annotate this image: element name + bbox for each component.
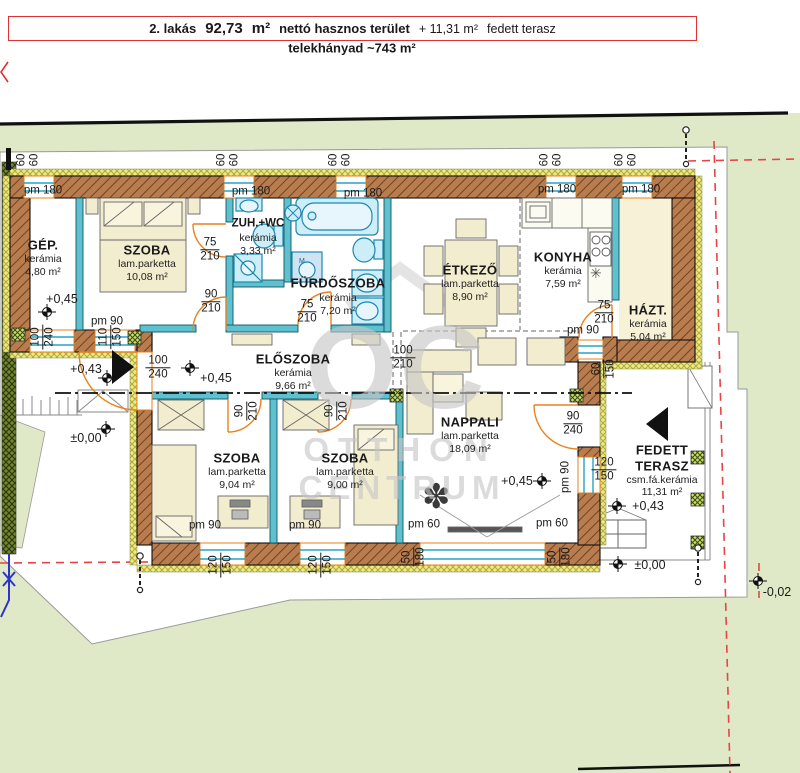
room-finish: kerámia <box>24 254 61 265</box>
opening-width: 100 <box>390 344 415 358</box>
opening-height: 210 <box>201 303 220 316</box>
opening-height: 180 <box>561 547 574 566</box>
opening-height: 210 <box>297 313 316 326</box>
opening-height: 210 <box>200 251 219 264</box>
opening-width: 60 <box>590 360 604 379</box>
room-area: 11,31 m² <box>642 487 683 498</box>
room-finish: kerámia <box>544 266 581 277</box>
opening-width: 110 <box>97 325 111 349</box>
hall-cabinet-icon <box>232 334 272 345</box>
parapet-label: pm 180 <box>232 186 270 198</box>
parapet-label: pm 90 <box>560 461 572 493</box>
room-area: 9,04 m² <box>219 480 255 491</box>
fridge-icon: ✳ <box>590 265 602 281</box>
edge-tick <box>6 148 11 170</box>
opening-height: 240 <box>563 425 582 438</box>
opening-width: 90 <box>323 402 337 421</box>
opening-size-label: 120 150 <box>307 552 334 577</box>
level-label: +0,45 <box>46 293 78 306</box>
dim-60: 60 <box>539 154 551 167</box>
room-area: 4,80 m² <box>25 267 61 278</box>
opening-size-label: 90 240 <box>563 410 582 437</box>
opening-width: 100 <box>29 324 43 349</box>
room-area: 3,33 m² <box>240 246 276 257</box>
dim-60: 60 <box>341 154 353 167</box>
room-name-eloszoba: ELŐSZOBA <box>256 353 331 366</box>
room-name-hazt: HÁZT. <box>629 304 667 317</box>
opening-width: 90 <box>564 410 583 424</box>
opening-height: 240 <box>44 327 57 346</box>
floor-plan-page: M ✳ ✽ <box>0 0 800 773</box>
opening-size-label: 110 150 <box>97 325 124 349</box>
opening-size-label: 90 210 <box>323 401 350 420</box>
level-label: ±0,00 <box>70 432 101 445</box>
stove-icon <box>590 232 611 266</box>
level-label: +0,43 <box>70 363 102 376</box>
level-label: +0,43 <box>632 500 664 513</box>
room-area: 9,66 m² <box>275 381 311 392</box>
opening-width: 90 <box>202 288 221 302</box>
room-finish: lam.parketta <box>208 467 266 478</box>
room-finish: kerámia <box>239 233 276 244</box>
room-area: 10,08 m² <box>126 272 167 283</box>
opening-height: 210 <box>594 314 613 327</box>
opening-width: 120 <box>207 552 221 577</box>
room-name-fedett: FEDETT <box>636 444 688 457</box>
room-name-szoba2: SZOBA <box>214 452 261 465</box>
opening-size-label: 75 210 <box>594 299 613 326</box>
opening-size-label: 75 210 <box>297 298 316 325</box>
shower-head-icon <box>285 205 301 221</box>
room-finish: kerámia <box>319 293 356 304</box>
level-label: ±0,00 <box>634 559 665 572</box>
room-area: 9,00 m² <box>327 480 363 491</box>
sink-icon <box>236 198 262 212</box>
dim-60: 60 <box>29 154 41 167</box>
room-finish: csm.fá.kerámia <box>626 475 697 486</box>
parapet-label: pm 180 <box>24 185 62 197</box>
opening-size-label: 60 150 <box>590 359 617 378</box>
room-finish: lam.parketta <box>441 431 499 442</box>
opening-width: 50 <box>546 548 560 567</box>
svg-text:M: M <box>299 258 305 265</box>
plot-share-label: telekhányad ~743 m² <box>288 41 416 56</box>
opening-size-label: 50 180 <box>400 547 427 566</box>
opening-width: 120 <box>591 456 616 470</box>
parapet-label: pm 180 <box>538 184 576 196</box>
opening-width: 75 <box>298 298 317 312</box>
parapet-label: pm 90 <box>567 325 599 337</box>
dim-60: 60 <box>627 154 639 167</box>
dim-60: 60 <box>552 154 564 167</box>
opening-width: 50 <box>400 548 414 567</box>
opening-size-label: 50 180 <box>546 547 573 566</box>
room-name-nappali: NAPPALI <box>441 416 499 429</box>
opening-height: 210 <box>338 401 351 420</box>
dim-60: 60 <box>216 154 228 167</box>
opening-size-label: 90 210 <box>201 288 220 315</box>
opening-width: 90 <box>233 402 247 421</box>
opening-height: 150 <box>594 471 613 484</box>
level-label: +0,45 <box>200 372 232 385</box>
title-banner: 2. lakás 92,73 m² nettó hasznos terület … <box>8 16 697 41</box>
terrace-area-label: fedett terasz <box>487 22 556 36</box>
opening-width: 120 <box>307 552 321 577</box>
room-area: 8,90 m² <box>452 292 488 303</box>
room-area: 7,20 m² <box>320 306 356 317</box>
parapet-label: pm 180 <box>344 188 382 200</box>
terrace-area-value: + 11,31 m² <box>419 22 478 36</box>
net-area-unit: m² <box>252 20 270 37</box>
room-finish: lam.parketta <box>118 259 176 270</box>
room-area: 18,09 m² <box>449 444 490 455</box>
room-name-zuhwc: ZUH.+WC <box>232 218 285 230</box>
opening-size-label: 90 210 <box>233 401 260 420</box>
net-area-label: nettó hasznos terület <box>279 21 410 36</box>
opening-height: 240 <box>148 369 167 382</box>
dim-60: 60 <box>614 154 626 167</box>
opening-width: 75 <box>595 299 614 313</box>
room-name-etkezo: ÉTKEZŐ <box>443 264 498 277</box>
opening-width: 75 <box>201 236 220 250</box>
opening-size-label: 120 150 <box>591 456 616 483</box>
room-area: 7,59 m² <box>545 279 581 290</box>
wardrobe-icon <box>158 400 204 430</box>
room-finish: kerámia <box>274 368 311 379</box>
tv-icon <box>448 527 522 532</box>
level-label: +0,45 <box>501 475 533 488</box>
opening-size-label: 75 210 <box>200 236 219 263</box>
bathtub-icon <box>296 198 378 235</box>
room-finish: lam.parketta <box>316 467 374 478</box>
opening-height: 150 <box>112 327 125 346</box>
opening-size-label: 100 210 <box>390 344 415 371</box>
level-label: -0,02 <box>763 586 792 599</box>
opening-size-label: 100 240 <box>145 354 170 381</box>
opening-height: 210 <box>393 359 412 372</box>
dim-60: 60 <box>229 154 241 167</box>
room-name-terasz: TERASZ <box>635 460 689 473</box>
opening-height: 180 <box>415 547 428 566</box>
opening-height: 210 <box>248 401 261 420</box>
net-area-value: 92,73 <box>205 20 243 37</box>
opening-height: 150 <box>322 555 335 574</box>
opening-size-label: 120 150 <box>207 552 234 577</box>
parapet-label: pm 180 <box>622 184 660 196</box>
dim-60: 60 <box>328 154 340 167</box>
opening-width: 100 <box>145 354 170 368</box>
parapet-label: pm 60 <box>408 519 440 531</box>
room-finish: lam.parketta <box>441 279 499 290</box>
room-name-konyha: KONYHA <box>534 251 592 264</box>
room-name-szoba1: SZOBA <box>124 244 171 257</box>
room-area: 5,04 m² <box>630 332 666 343</box>
desk-computer-icon <box>218 496 268 528</box>
shower-icon <box>234 254 262 282</box>
parapet-label: pm 90 <box>289 520 321 532</box>
room-name-furdoszoba: FÜRDŐSZOBA <box>291 277 386 290</box>
room-finish: kerámia <box>629 319 666 330</box>
opening-height: 150 <box>222 555 235 574</box>
apartment-label: 2. lakás <box>149 21 196 36</box>
room-name-szoba3: SZOBA <box>322 452 369 465</box>
parapet-label: pm 60 <box>536 518 568 530</box>
opening-size-label: 100 240 <box>29 324 56 349</box>
parapet-label: pm 90 <box>189 520 221 532</box>
opening-height: 150 <box>605 359 618 378</box>
dim-60: 60 <box>16 154 28 167</box>
room-name-gep: GÉP. <box>28 239 59 252</box>
toilet-icon <box>353 238 383 262</box>
